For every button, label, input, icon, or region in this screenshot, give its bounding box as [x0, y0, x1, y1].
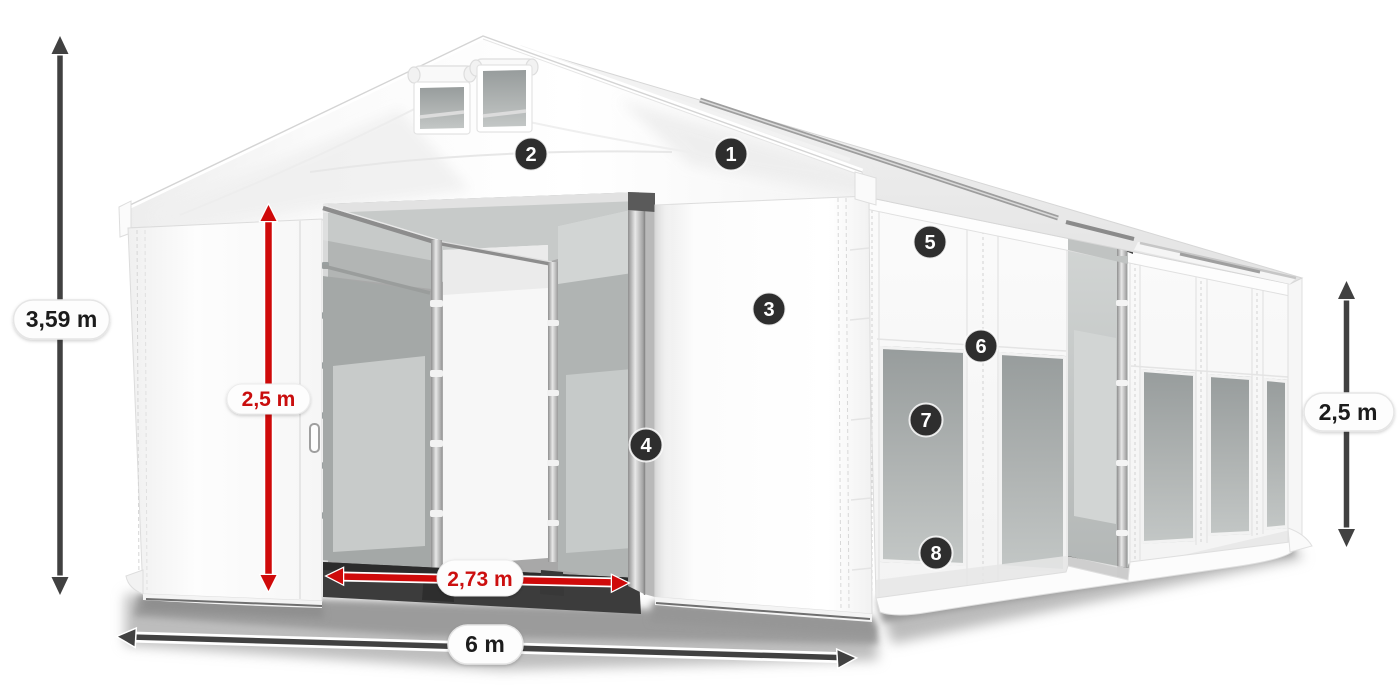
svg-text:3,59 m: 3,59 m: [26, 306, 98, 332]
svg-text:2: 2: [525, 144, 536, 166]
svg-text:2,5 m: 2,5 m: [242, 388, 296, 411]
svg-text:1: 1: [725, 144, 736, 166]
svg-text:8: 8: [930, 543, 941, 565]
svg-text:6 m: 6 m: [465, 631, 505, 657]
svg-text:3: 3: [763, 299, 774, 321]
svg-text:5: 5: [924, 232, 935, 254]
svg-text:7: 7: [920, 410, 931, 432]
svg-text:4: 4: [640, 435, 652, 457]
svg-text:2,5 m: 2,5 m: [1319, 399, 1378, 425]
svg-text:2,73 m: 2,73 m: [447, 568, 512, 591]
svg-text:6: 6: [975, 336, 986, 358]
